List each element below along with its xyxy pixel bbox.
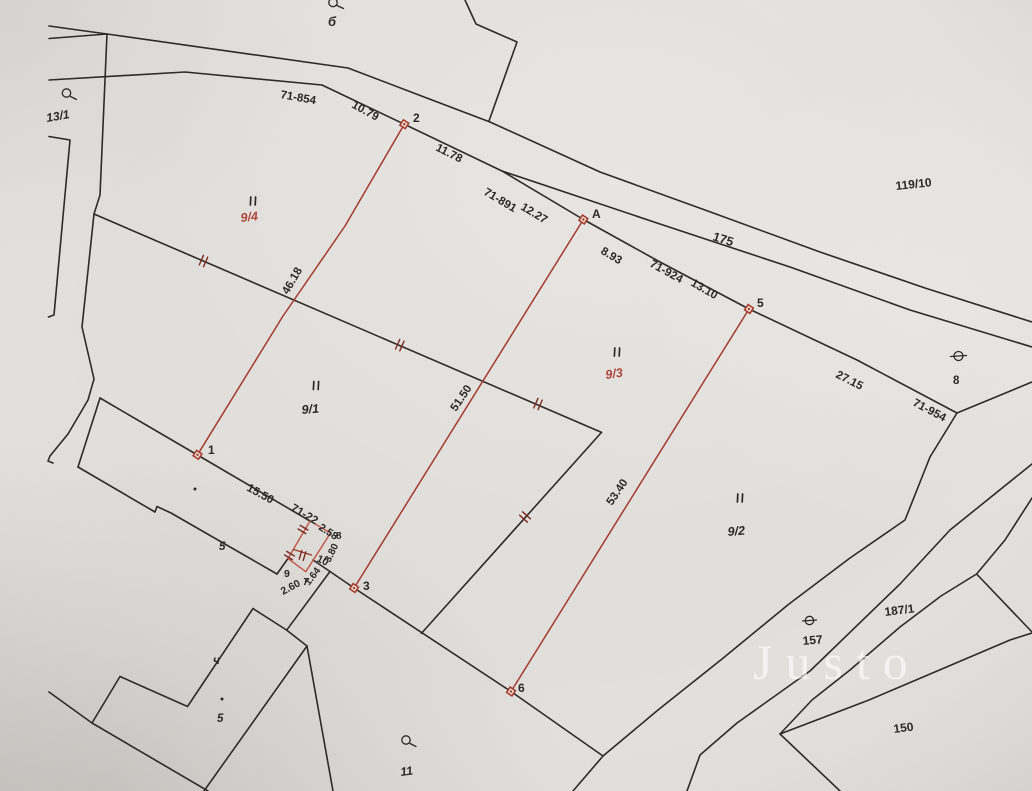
svg-text:2: 2: [413, 111, 420, 125]
svg-text:6: 6: [518, 681, 525, 695]
svg-text:1: 1: [208, 443, 215, 457]
svg-text:ч: ч: [213, 653, 220, 667]
svg-text:9/1: 9/1: [301, 402, 320, 417]
svg-text:8: 8: [336, 531, 342, 542]
svg-text:150: 150: [893, 720, 915, 736]
svg-text:9/4: 9/4: [240, 209, 259, 225]
svg-text:9: 9: [284, 568, 290, 580]
svg-text:8: 8: [953, 375, 960, 387]
svg-text:11: 11: [399, 763, 414, 779]
svg-text:5: 5: [219, 541, 226, 553]
svg-text:3: 3: [363, 579, 370, 593]
svg-text:5: 5: [217, 713, 224, 725]
svg-text:Justo: Justo: [753, 634, 921, 690]
svg-text:9/2: 9/2: [727, 524, 746, 539]
svg-text:б: б: [328, 14, 337, 29]
svg-text:5: 5: [757, 296, 764, 310]
svg-text:9/3: 9/3: [604, 366, 623, 382]
svg-text:A: A: [592, 207, 601, 221]
